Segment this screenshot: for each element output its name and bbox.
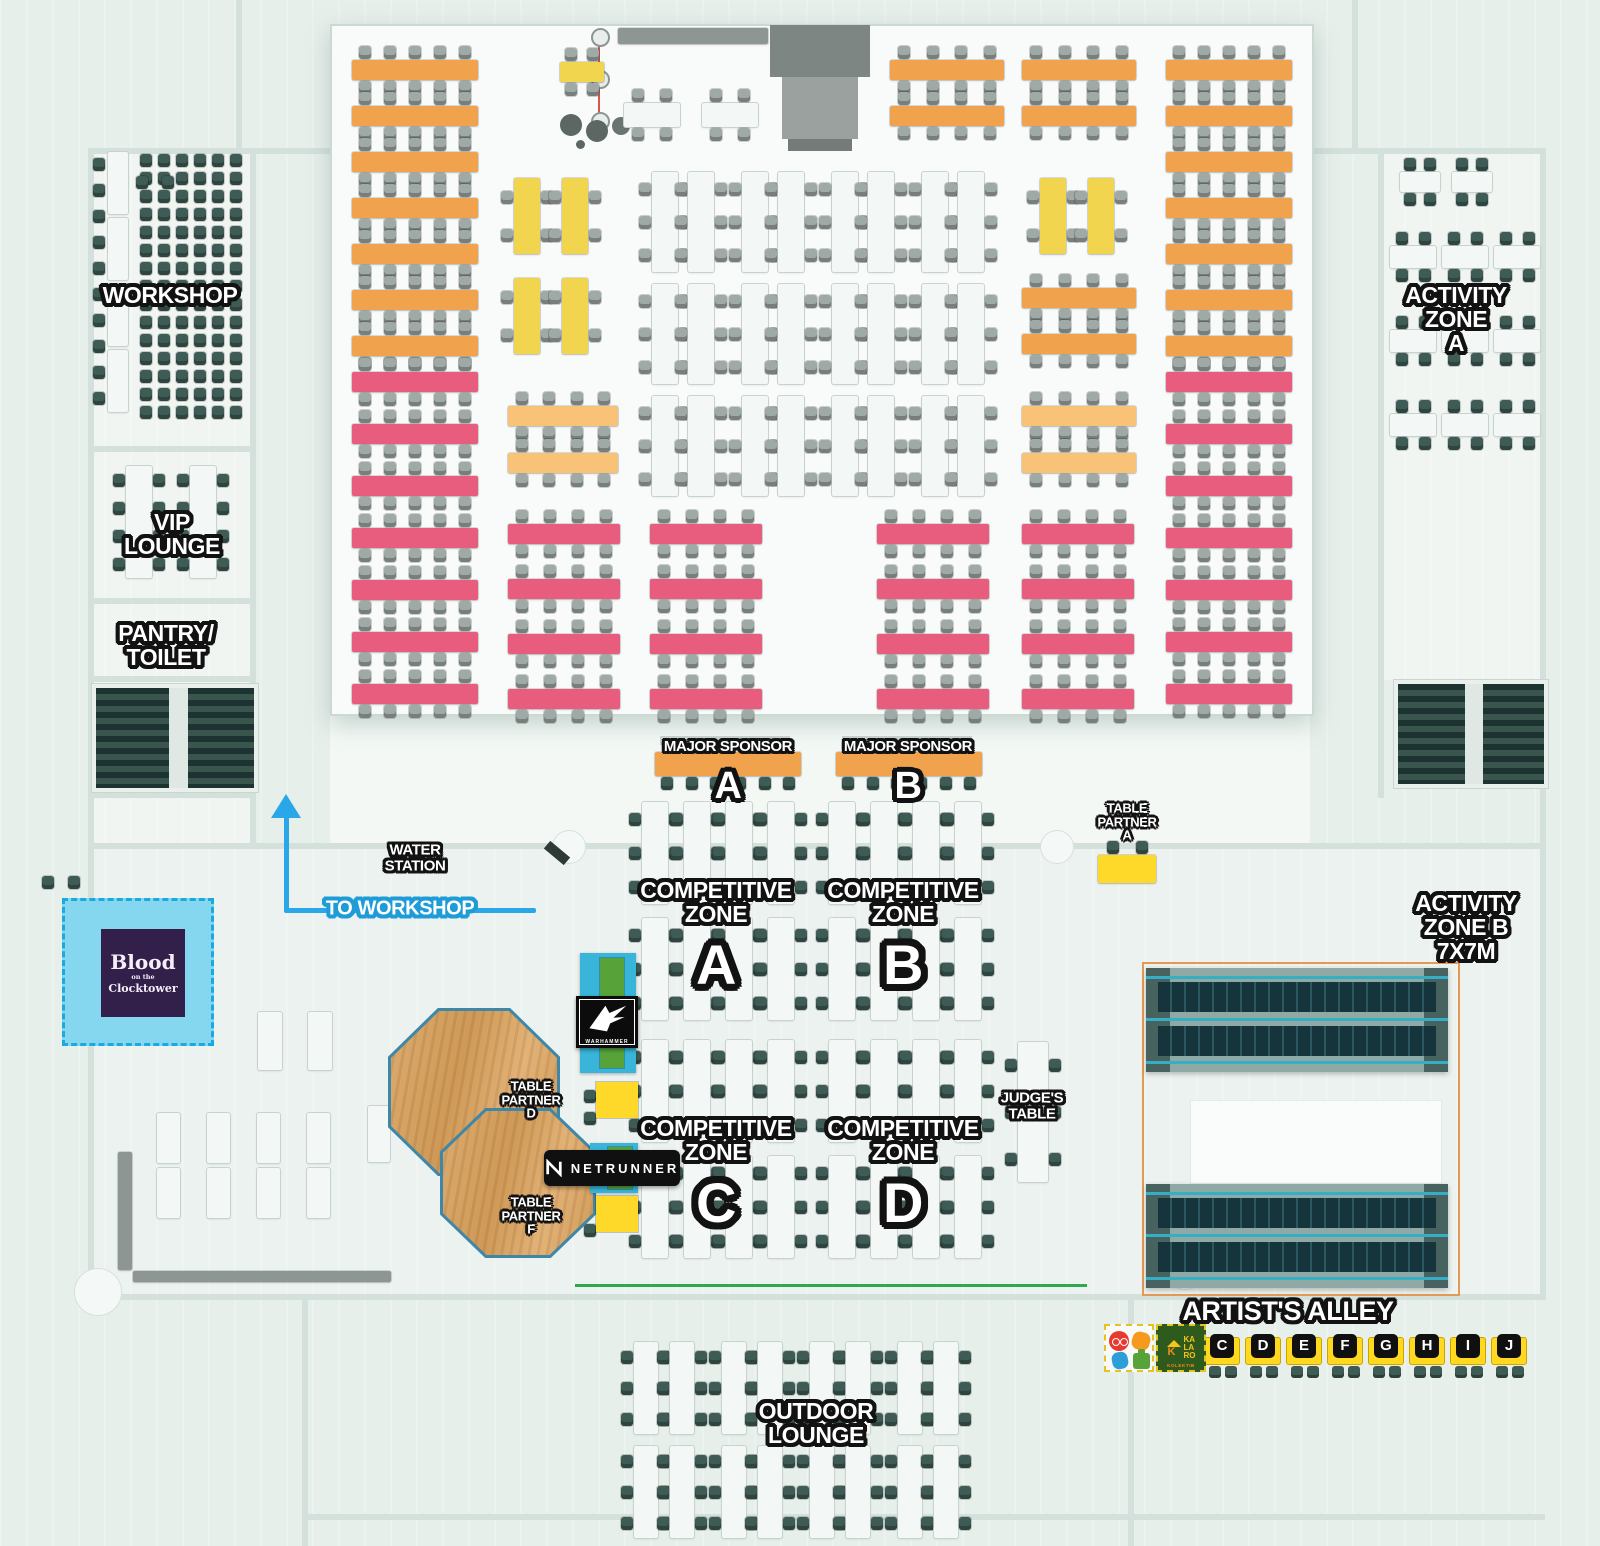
arrow-line-vertical (284, 816, 289, 912)
chair (1373, 1366, 1385, 1378)
artists-alley-letter: F (1333, 1334, 1357, 1358)
floorplan-canvas: Blood on the Clocktower WARHAMMER NETRUN… (0, 0, 1600, 1546)
kalaro-logo: K KA LA RO KOLEKTIB (1156, 1324, 1206, 1372)
major-sponsor-a-label: MAJOR SPONSOR (664, 739, 792, 755)
artists-alley-letter: E (1292, 1334, 1316, 1358)
warhammer-eagle-icon (583, 1001, 631, 1033)
pantry-toilet-label: PANTRY/ TOILET (118, 622, 214, 670)
chair (1307, 1366, 1319, 1378)
table-partner-d-label: TABLE PARTNER D (501, 1080, 560, 1121)
to-workshop-label: TO WORKSHOP (326, 899, 475, 920)
netrunner-n-icon (545, 1159, 563, 1177)
chair (1291, 1366, 1303, 1378)
judges-table-label: JUDGE'S TABLE (1001, 1090, 1063, 1121)
competitive-zone-c-label: COMPETITIVE ZONE (640, 1117, 792, 1165)
zone-boundary-line (575, 1284, 1087, 1287)
vip-lounge-label: VIP LOUNGE (124, 511, 220, 559)
chair (1250, 1366, 1262, 1378)
shapes-logo-glasses (1112, 1338, 1120, 1346)
warhammer-logo-text: WARHAMMER (576, 1039, 638, 1045)
chair (1348, 1366, 1360, 1378)
shapes-logo-green-shape (1133, 1353, 1150, 1369)
competitive-zone-a-label: COMPETITIVE ZONE (640, 879, 792, 927)
shapes-logo-green-stub (1138, 1349, 1145, 1355)
competitive-zone-b-letter: B (883, 936, 923, 994)
table-partner-a-label: TABLE PARTNER A (1097, 802, 1156, 843)
competitive-zone-d-letter: D (883, 1174, 923, 1232)
outdoor-lounge-label: OUTDOOR LOUNGE (759, 1400, 874, 1448)
major-sponsor-b-label: MAJOR SPONSOR (844, 739, 972, 755)
artists-alley-table-E: E (1287, 1338, 1321, 1364)
chair (1512, 1366, 1524, 1378)
chair (1430, 1366, 1442, 1378)
water-station-label: WATER STATION (385, 842, 446, 873)
shapes-logo-blue-shape (1110, 1351, 1129, 1371)
major-sponsor-a-letter: A (714, 767, 741, 807)
artists-alley-table-D: D (1246, 1338, 1280, 1364)
artists-alley-table-C: C (1205, 1338, 1239, 1364)
kalaro-sub: KOLEKTIB (1158, 1363, 1204, 1368)
shapes-logo (1104, 1324, 1154, 1372)
chair (1471, 1366, 1483, 1378)
artists-alley-letter: H (1415, 1334, 1439, 1358)
competitive-zone-c-letter: C (696, 1174, 736, 1232)
artists-alley-table-I: I (1451, 1338, 1485, 1364)
artists-alley-table-J: J (1492, 1338, 1526, 1364)
artists-alley-letter: C (1210, 1334, 1234, 1358)
artists-alley-letter: I (1456, 1334, 1480, 1358)
chair (1496, 1366, 1508, 1378)
artists-alley-letter: G (1374, 1334, 1398, 1358)
artists-alley-table-G: G (1369, 1338, 1403, 1364)
kalaro-k: K (1168, 1346, 1176, 1358)
chair (1414, 1366, 1426, 1378)
chair (1332, 1366, 1344, 1378)
table-partner-f-label: TABLE PARTNER F (501, 1196, 560, 1237)
activity-zone-a-label: ACTIVITY ZONE A (1405, 284, 1507, 356)
warhammer-logo: WARHAMMER (576, 996, 638, 1048)
chair (1266, 1366, 1278, 1378)
workshop-label: WORKSHOP (103, 284, 238, 308)
activity-zone-b-label: ACTIVITY ZONE B 7X7M (1415, 892, 1517, 964)
up-arrow-icon (271, 794, 301, 818)
artists-alley-table-H: H (1410, 1338, 1444, 1364)
artists-alley-label: ARTIST'S ALLEY (1182, 1297, 1393, 1325)
chair (1225, 1366, 1237, 1378)
artists-alley-letter: J (1497, 1334, 1521, 1358)
shapes-logo-glasses (1120, 1338, 1128, 1346)
chair (1209, 1366, 1221, 1378)
major-sponsor-b-letter: B (894, 767, 921, 807)
kalaro-house-icon: K (1167, 1340, 1181, 1356)
competitive-zone-a-letter: A (696, 936, 736, 994)
chair (1389, 1366, 1401, 1378)
competitive-zone-d-label: COMPETITIVE ZONE (827, 1117, 979, 1165)
artists-alley-table-F: F (1328, 1338, 1362, 1364)
kalaro-name: KA LA RO (1184, 1336, 1196, 1360)
chair (1455, 1366, 1467, 1378)
competitive-zone-b-label: COMPETITIVE ZONE (827, 879, 979, 927)
artists-alley-letter: D (1251, 1334, 1275, 1358)
